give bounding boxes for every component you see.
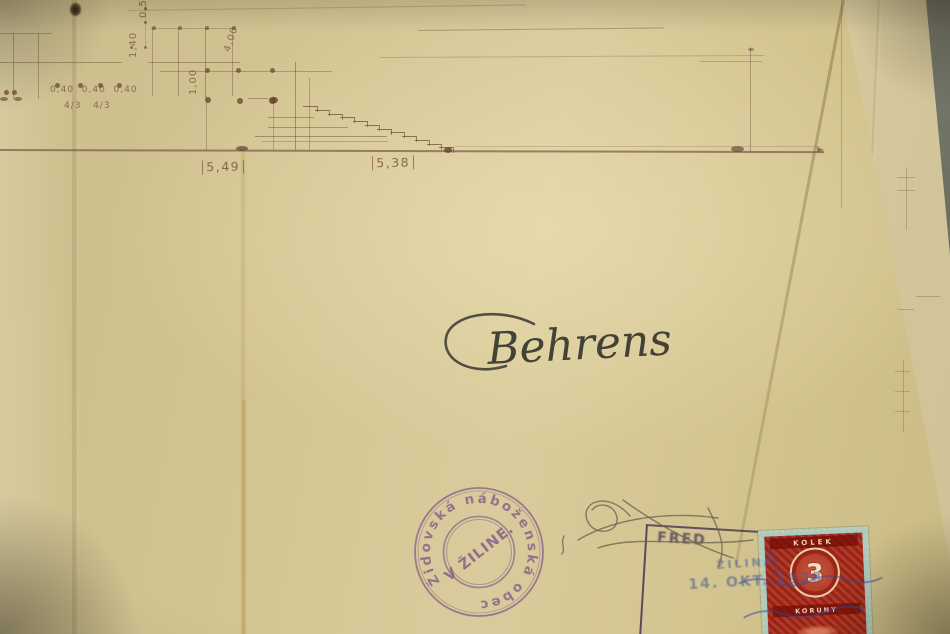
- drawing-line: [841, 0, 842, 208]
- photographed-drawing: 5,49 5,38 0,5 1,40 4,00 1,00 0,40 0,40 0…: [0, 0, 950, 634]
- drawing-line: [750, 47, 751, 153]
- drawing-node-dot: [130, 46, 133, 49]
- drawing-line: [455, 146, 821, 147]
- drawing-node-dot: [4, 90, 9, 95]
- drawing-line: [0, 62, 122, 63]
- drawing-line: [262, 141, 388, 142]
- dimension-tick: [372, 156, 374, 170]
- drawing-line: [309, 78, 310, 150]
- drawing-line: [206, 96, 207, 150]
- drawing-node-dot: [748, 48, 754, 51]
- pencil-stroke: [578, 515, 718, 540]
- dimension-value: 5,49: [206, 159, 240, 175]
- drawing-line: [700, 61, 762, 62]
- annotation-1-40: 1,40: [128, 32, 139, 58]
- drawing-node-dot: [98, 83, 103, 88]
- drawing-line: [268, 127, 348, 128]
- drawing-line: [380, 55, 764, 58]
- drawing-line: [0, 33, 52, 34]
- drawing-line: [128, 4, 526, 11]
- drawing-node-dot: [12, 90, 17, 95]
- drawing-line: [916, 296, 940, 297]
- drawing-line: [248, 98, 268, 99]
- drawing-line: [145, 4, 146, 48]
- drawing-node-dot: [205, 97, 211, 103]
- drawing-node-dot: [236, 68, 241, 73]
- drawing-line: [268, 117, 314, 118]
- drawing-node-dot: [14, 97, 22, 101]
- dimension-value: 5,38: [376, 155, 410, 171]
- drawing-line: [897, 190, 915, 191]
- drawing-node-dot: [78, 83, 83, 88]
- drawing-line: [178, 28, 179, 96]
- drawing-node-dot: [144, 46, 147, 49]
- signature-text: Behrens: [485, 314, 673, 375]
- drawing-node-dot: [144, 21, 147, 24]
- drawing-node-dot: [205, 26, 209, 30]
- drawing-line: [895, 411, 910, 412]
- drawing-node-dot: [205, 68, 210, 73]
- drawing-line: [150, 28, 234, 29]
- drawing-line: [232, 28, 233, 96]
- drawing-line: [148, 62, 240, 63]
- drawing-node-dot: [731, 146, 744, 152]
- drawing-line: [295, 62, 296, 151]
- drawing-line: [205, 28, 206, 98]
- drawing-line: [273, 96, 274, 150]
- drawing-node-dot: [232, 26, 236, 30]
- drawing-node-dot: [117, 83, 122, 88]
- drawing-line: [895, 391, 910, 392]
- drawing-line: [255, 136, 387, 137]
- drawing-line: [895, 371, 910, 372]
- drawing-node-dot: [144, 7, 147, 10]
- stair-step: [439, 147, 454, 153]
- drawing-line: [152, 28, 153, 96]
- drawing-node-dot: [152, 26, 156, 30]
- annotation-040-row: 0,40 0,40 0,40: [50, 85, 138, 95]
- dimension-label-right: 5,38: [372, 155, 415, 171]
- community-round-stamp: Židovská náboženská obec V ŽILINE.: [398, 478, 564, 634]
- drawing-line: [0, 149, 824, 153]
- drawing-node-dot: [269, 97, 276, 104]
- pencil-stroke: [562, 536, 564, 554]
- pencil-stroke: [598, 540, 753, 548]
- behrens-signature: Behrens: [436, 308, 676, 390]
- drawing-node-dot: [237, 98, 243, 104]
- annotation-fractions: 4/3 4/3: [64, 101, 111, 111]
- drawing-node-dot: [270, 68, 275, 73]
- pencil-stroke: [623, 500, 733, 558]
- drawing-line: [897, 177, 915, 178]
- drawing-line: [38, 33, 39, 99]
- drawing-node-dot: [178, 26, 182, 30]
- annotation-1-00: 1,00: [188, 69, 199, 95]
- dimension-label-left: 5,49: [202, 159, 245, 175]
- drawing-line: [418, 27, 664, 31]
- dimension-tick: [202, 160, 204, 174]
- drawing-node-dot: [0, 97, 8, 101]
- drawing-line: [898, 309, 914, 310]
- drawing-line: [160, 71, 332, 72]
- dimension-tick: [243, 159, 245, 173]
- drawing-node-dot: [236, 146, 248, 151]
- dimension-tick: [413, 155, 415, 169]
- overprint-stroke: [743, 606, 863, 620]
- drawing-node-dot: [55, 83, 60, 88]
